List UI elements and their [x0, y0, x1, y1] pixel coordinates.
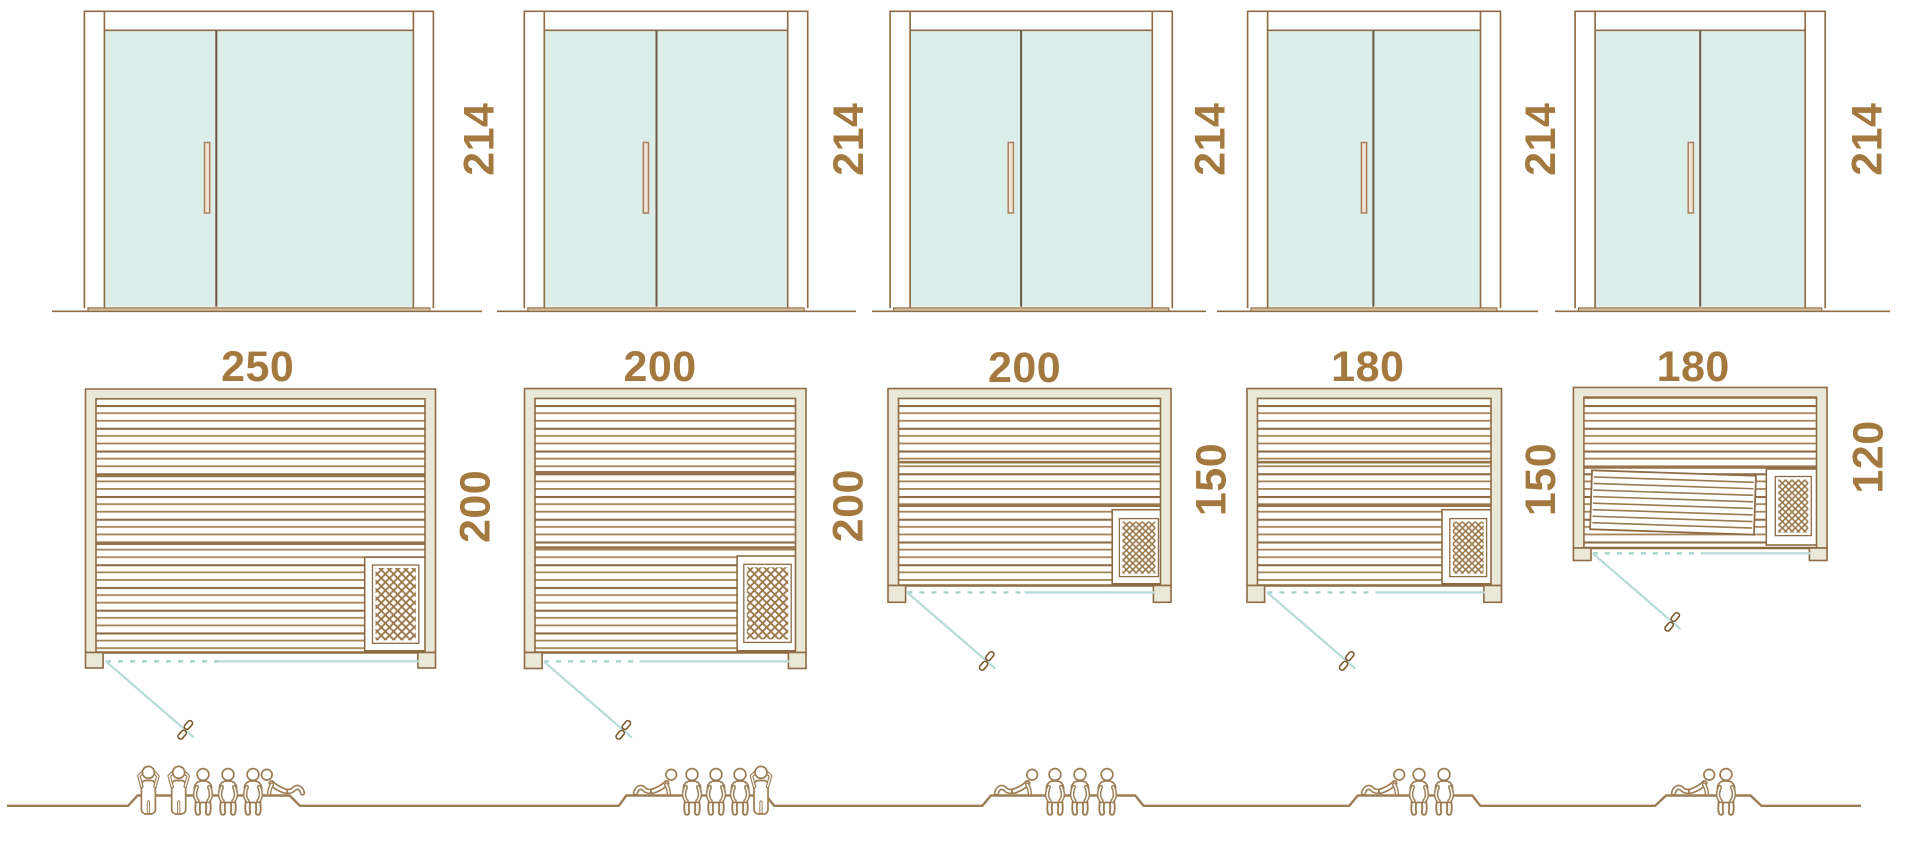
svg-text:200: 200 — [452, 470, 500, 543]
svg-text:150: 150 — [1517, 443, 1565, 516]
svg-text:200: 200 — [825, 469, 873, 542]
svg-text:214: 214 — [825, 103, 873, 176]
svg-text:250: 250 — [221, 343, 294, 391]
svg-text:214: 214 — [1517, 103, 1565, 176]
svg-text:214: 214 — [1844, 103, 1892, 176]
svg-text:214: 214 — [456, 103, 504, 176]
svg-text:150: 150 — [1188, 443, 1236, 516]
svg-text:120: 120 — [1845, 420, 1893, 493]
svg-text:200: 200 — [623, 343, 696, 391]
svg-text:214: 214 — [1187, 103, 1235, 176]
svg-text:180: 180 — [1331, 343, 1404, 391]
svg-text:200: 200 — [988, 344, 1061, 392]
svg-text:180: 180 — [1657, 343, 1730, 391]
